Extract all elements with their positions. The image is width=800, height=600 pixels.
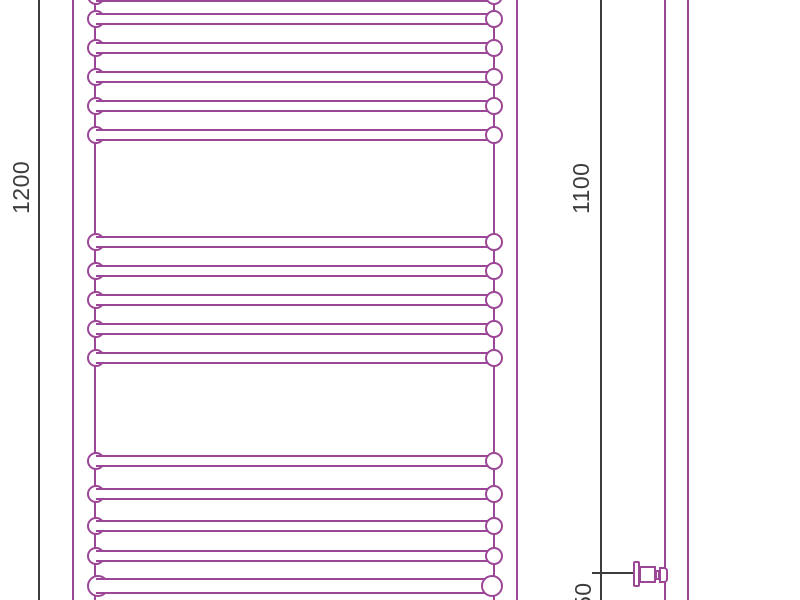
towel-rail-rung: [87, 39, 503, 57]
rung-weld-cap-right: [485, 485, 503, 503]
rung-tube: [96, 129, 494, 141]
side-view-tube-line: [664, 0, 666, 600]
rung-weld-cap-right: [485, 10, 503, 28]
rung-weld-cap-right: [481, 575, 503, 597]
towel-rail-rung: [87, 485, 503, 503]
towel-rail-rung: [87, 291, 503, 309]
side-view-tube-line: [687, 0, 689, 600]
technical-drawing-canvas: 1200 1100 50: [0, 0, 800, 600]
rung-weld-cap-right: [485, 291, 503, 309]
rung-tube: [96, 265, 494, 277]
towel-rail-rung: [87, 126, 503, 144]
front-post-line: [516, 0, 518, 600]
rung-weld-cap-right: [485, 233, 503, 251]
towel-rail-rung: [87, 10, 503, 28]
towel-rail-rung: [87, 97, 503, 115]
towel-rail-rung: [87, 349, 503, 367]
rung-weld-cap-right: [485, 517, 503, 535]
rung-tube: [96, 323, 494, 335]
rung-tube: [96, 578, 494, 594]
dimension-label-height: 1200: [10, 161, 33, 214]
rung-weld-cap-right: [485, 452, 503, 470]
rung-tube: [96, 71, 494, 83]
dimension-label-bottom-offset: 50: [572, 582, 595, 600]
rung-tube: [96, 13, 494, 25]
rung-weld-cap-right: [485, 547, 503, 565]
rung-tube: [96, 550, 494, 562]
rung-tube: [96, 455, 494, 467]
towel-rail-rung: [87, 68, 503, 86]
valve-body: [639, 566, 656, 583]
rung-tube: [96, 100, 494, 112]
rung-weld-cap-right: [485, 262, 503, 280]
rung-weld-cap-right: [485, 68, 503, 86]
towel-rail-rung: [87, 547, 503, 565]
towel-rail-rung: [87, 517, 503, 535]
rung-tube: [96, 352, 494, 364]
towel-rail-rung: [87, 233, 503, 251]
rung-tube: [96, 0, 494, 2]
rung-tube: [96, 42, 494, 54]
dimension-tick-line: [592, 572, 634, 574]
towel-rail-rung-large: [87, 575, 503, 597]
rung-tube: [96, 236, 494, 248]
towel-rail-rung: [87, 262, 503, 280]
rung-tube: [96, 488, 494, 500]
rung-weld-cap-right: [485, 349, 503, 367]
rung-weld-cap-right: [485, 126, 503, 144]
rung-tube: [96, 520, 494, 532]
dimension-label-connection-height: 1100: [570, 163, 593, 214]
towel-rail-rung: [87, 0, 503, 5]
rung-weld-cap-right: [485, 0, 503, 5]
rung-weld-cap-right: [485, 39, 503, 57]
towel-rail-rung: [87, 320, 503, 338]
valve-union-nut: [659, 567, 668, 583]
dimension-line-right: [600, 0, 602, 600]
front-post-line: [72, 0, 74, 600]
towel-rail-rung: [87, 452, 503, 470]
rung-weld-cap-right: [485, 97, 503, 115]
rung-weld-cap-right: [485, 320, 503, 338]
dimension-line-left: [38, 0, 40, 600]
rung-tube: [96, 294, 494, 306]
